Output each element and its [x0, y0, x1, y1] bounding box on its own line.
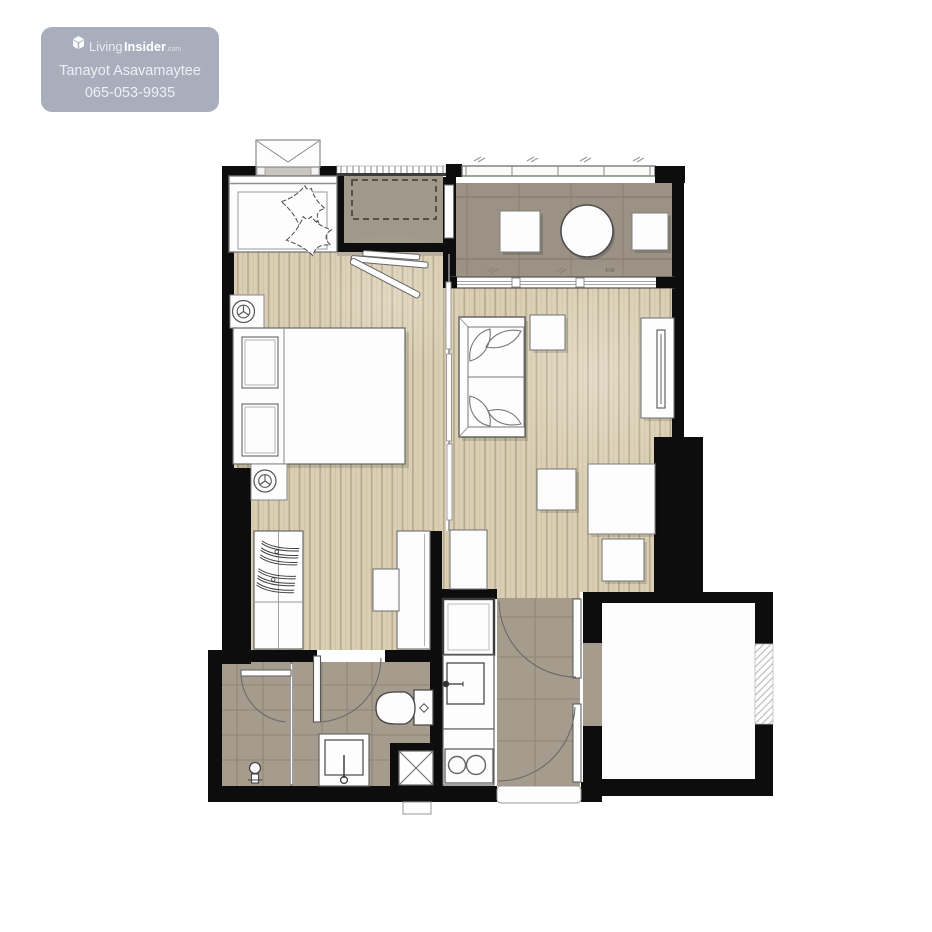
svg-text:Living: Living — [89, 39, 122, 54]
svg-text:Tanayot Asavamaytee: Tanayot Asavamaytee — [59, 63, 201, 79]
svg-text:065-053-9935: 065-053-9935 — [85, 85, 175, 101]
svg-text:.com: .com — [166, 46, 181, 53]
svg-text:Insider: Insider — [124, 39, 166, 54]
svg-text:FIX: FIX — [606, 268, 615, 274]
